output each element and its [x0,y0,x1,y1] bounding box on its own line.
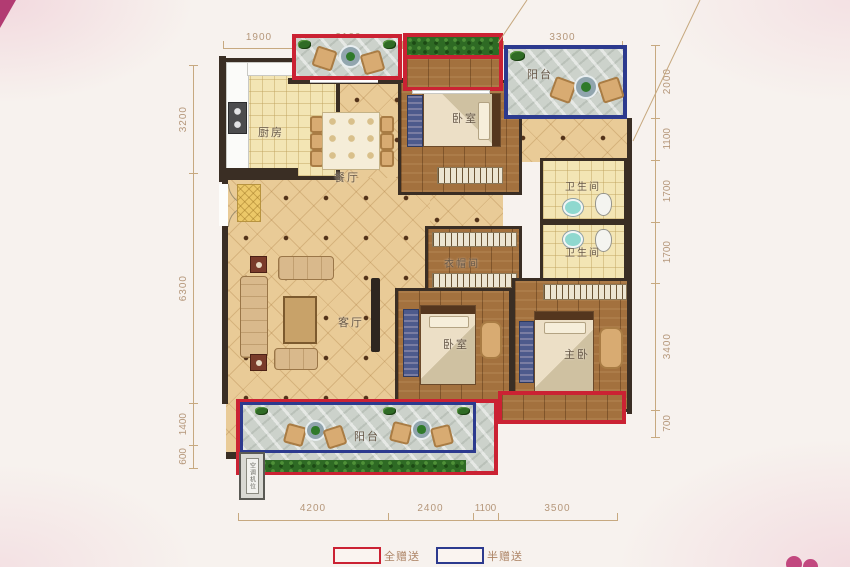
leader-lines [0,0,850,567]
bathroom-lower-label: 卫生间 [565,244,601,259]
living-label: 客厅 [338,314,364,330]
kitchen-label: 厨房 [258,124,284,140]
bedroom-top-label: 卧室 [452,110,478,126]
cloakroom-label: 衣帽间 [444,255,480,270]
bathroom-upper-label: 卫生间 [565,178,601,193]
bedroom-bottom-label: 卧室 [443,336,469,352]
floorplan-canvas: 空调机位 厨房 餐厅 客厅 卧室 卧室 主卧 衣帽间 卫生间 卫生间 阳台 阳台… [0,0,850,567]
dining-label: 餐厅 [334,169,360,185]
balcony-top-label: 阳台 [527,66,553,82]
master-bedroom-label: 主卧 [564,346,590,362]
